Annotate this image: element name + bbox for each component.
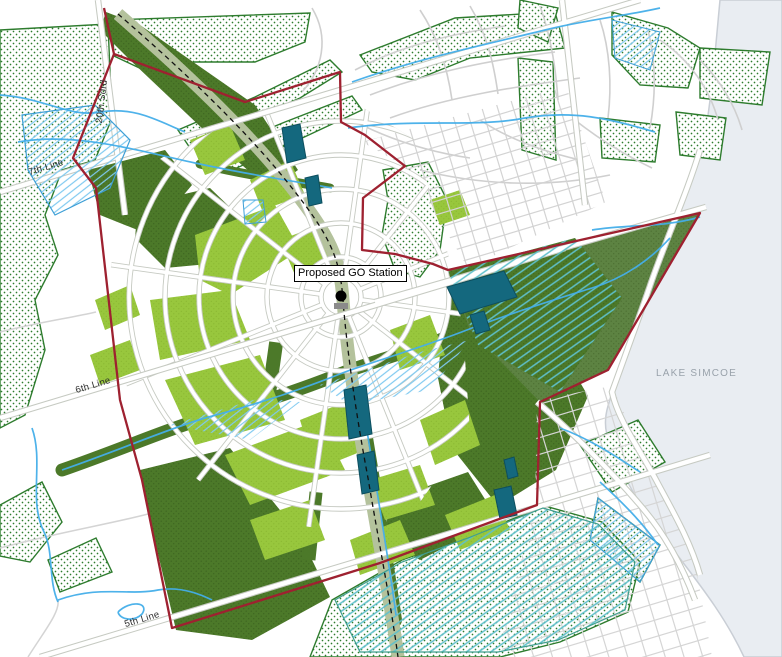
land-use-map: Proposed GO Station LAKE SIMCOE 7th Line…	[0, 0, 782, 657]
map-canvas	[0, 0, 782, 657]
